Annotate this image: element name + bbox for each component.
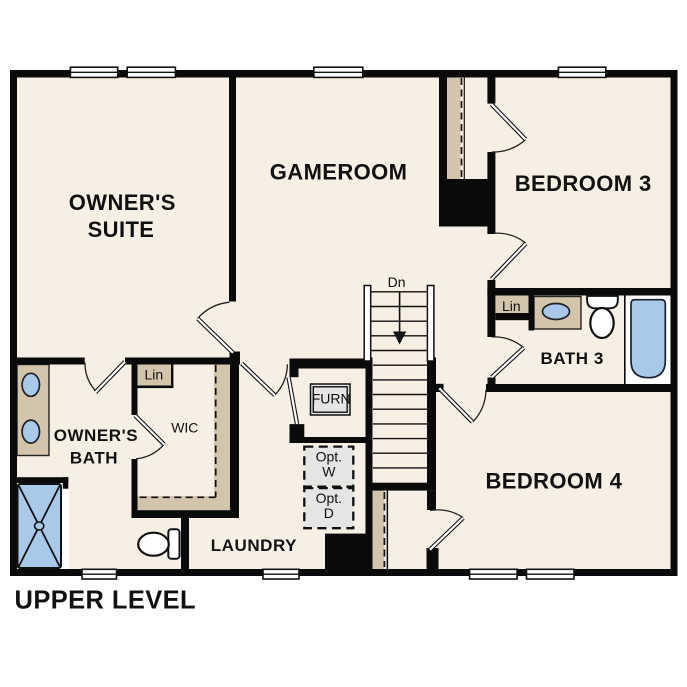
svg-text:BATH 3: BATH 3 xyxy=(540,349,603,368)
svg-text:GAMEROOM: GAMEROOM xyxy=(270,160,408,185)
svg-text:W: W xyxy=(322,463,336,479)
svg-text:BATH: BATH xyxy=(70,449,118,468)
svg-text:LAUNDRY: LAUNDRY xyxy=(211,536,297,555)
svg-text:WIC: WIC xyxy=(171,420,198,436)
svg-text:BEDROOM 4: BEDROOM 4 xyxy=(485,468,622,493)
svg-text:D: D xyxy=(324,505,334,521)
svg-text:OWNER'S: OWNER'S xyxy=(69,190,176,215)
svg-text:Lin: Lin xyxy=(144,367,163,383)
svg-text:Dn: Dn xyxy=(388,274,406,290)
svg-text:Opt.: Opt. xyxy=(316,490,342,506)
svg-text:OWNER'S: OWNER'S xyxy=(54,426,138,445)
svg-text:UPPER LEVEL: UPPER LEVEL xyxy=(15,587,197,615)
svg-text:Lin: Lin xyxy=(502,298,521,314)
svg-text:SUITE: SUITE xyxy=(88,217,155,242)
svg-text:Opt.: Opt. xyxy=(316,448,342,464)
svg-text:FURN: FURN xyxy=(312,391,351,407)
svg-text:BEDROOM 3: BEDROOM 3 xyxy=(515,171,652,196)
